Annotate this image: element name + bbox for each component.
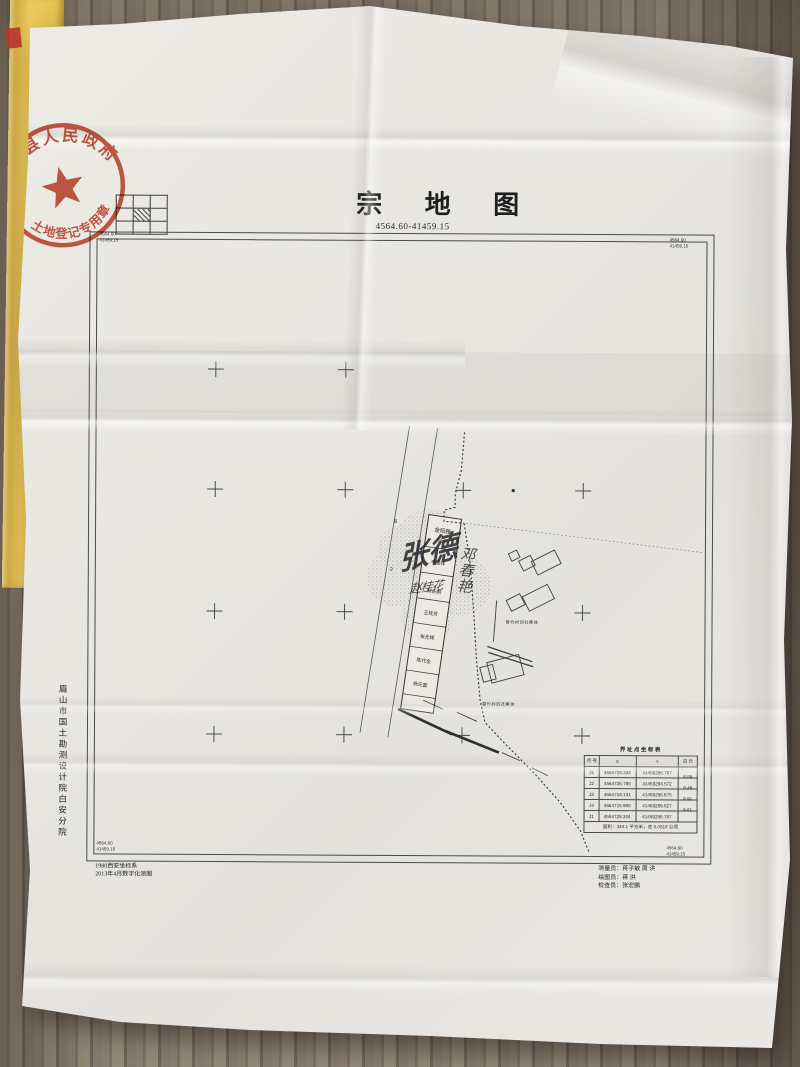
coordinate-table-block: 界址点坐标表 点 号 X Y 边 长 J14564728.334 4145929…	[580, 745, 700, 834]
inspector-credit: 检查员：张宏鹏	[598, 882, 655, 891]
map-document: 宗 地 图 4564.60-41459.15 4564.6041459.15 4…	[0, 0, 800, 1067]
map-notes: 1980西安坐标系 2013年4月数字化测图	[95, 862, 152, 878]
road-dashes	[423, 700, 548, 776]
surveying-organization: 眉山市国土勘测设计院白安分院	[56, 684, 69, 852]
table-row: J44564715.980 41459289.8278.61	[584, 799, 697, 811]
boundary-faint	[466, 523, 703, 552]
neighbor-parcel-label: 营竹村四社集体	[506, 619, 539, 626]
survey-point-dot	[512, 489, 515, 492]
coordinate-table: 点 号 X Y 边 长 J14564728.334 41459296.7878.…	[583, 755, 697, 834]
paper-sheet-wrap: 宗 地 图 4564.60-41459.15 4564.6041459.15 4…	[0, 0, 800, 1067]
coordinate-table-header: 点 号 X Y 边 长	[584, 755, 697, 767]
paper-sheet: 宗 地 图 4564.60-41459.15 4564.6041459.15 4…	[0, 0, 800, 1067]
survey-date-note: 2013年4月数字化测图	[95, 870, 152, 878]
area-summary: 面积：344.1 平方米，合 0.0516 公顷	[584, 821, 697, 833]
credits-block: 测量员：蒋子敏 周 洪 绘图员：蒋 洪 检查员：张宏鹏	[598, 865, 655, 891]
coordinate-table-title: 界址点坐标表	[581, 745, 701, 754]
table-row: J34564718.131 41459296.8758.91	[584, 788, 697, 800]
seal-star-icon	[38, 162, 88, 211]
draftsman-credit: 绘图员：蒋 洪	[598, 874, 655, 883]
boundary-dotted	[442, 432, 591, 853]
coordinate-system-note: 1980西安坐标系	[95, 862, 152, 870]
table-row: J14564728.334 41459296.7878.89	[584, 766, 697, 778]
table-footer-row: 面积：344.1 平方米，合 0.0516 公顷	[584, 821, 697, 833]
buildings	[479, 534, 561, 685]
table-row: J24564726.786 41459294.5728.48	[584, 777, 697, 789]
surveyor-credit: 测量员：蒋子敏 周 洪	[598, 865, 655, 874]
road-number-label: 8	[394, 519, 397, 525]
road-number-label: 2	[390, 567, 393, 573]
desk-scene: 宗 地 图 4564.60-41459.15 4564.6041459.15 4…	[0, 0, 800, 1067]
neighbor-parcel-label: 营竹村四社集体	[482, 700, 515, 707]
table-row: J14564728.334 41459296.787	[584, 810, 697, 822]
